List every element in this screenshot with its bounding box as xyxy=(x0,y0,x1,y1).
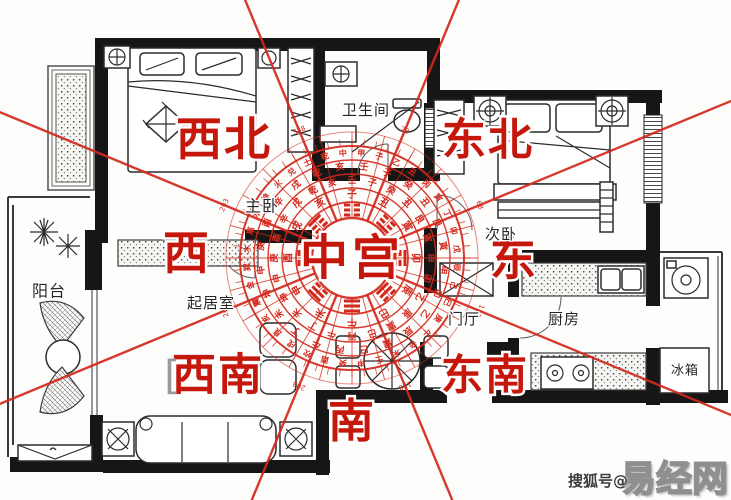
compass-tick xyxy=(293,155,297,161)
direction-label-center: 中宫 xyxy=(300,230,404,286)
kitchen-counter-top xyxy=(522,263,646,296)
ring-character: 离 xyxy=(244,226,256,236)
radiator xyxy=(600,182,613,232)
compass-tick xyxy=(249,314,255,318)
room-label-kitchen: 厨房 xyxy=(548,310,580,328)
ring-character: 卯 xyxy=(448,226,460,236)
ring-character: 庚 xyxy=(268,253,280,262)
fengshui-floorplan: 2368113158203248293338子丑寅卯辰巳午未申酉戌亥壬子癸丑艮寅… xyxy=(0,0,731,500)
ring-character: 寅 xyxy=(437,241,450,252)
ring-character: 辛 xyxy=(277,212,292,226)
ring-character: 壬 xyxy=(347,174,356,186)
room-label-fridge: 冰箱 xyxy=(671,363,699,379)
side-table-left xyxy=(102,422,134,456)
compass-tick xyxy=(282,162,286,168)
ring-character: 壬 xyxy=(359,160,370,173)
room-label-second-bedroom: 次卧 xyxy=(485,225,517,243)
bay-window xyxy=(48,66,94,190)
degree-label: 68 xyxy=(474,200,485,211)
balcony-plants xyxy=(30,218,80,258)
ring-character: 巳 xyxy=(359,343,369,355)
direction-label-southeast: 东南 xyxy=(441,351,529,400)
direction-label-northwest: 西北 xyxy=(176,112,272,166)
ring-character: 巳 xyxy=(366,326,378,339)
compass-tick xyxy=(418,162,422,168)
compass-tick xyxy=(239,221,246,223)
ring-character: 辰 xyxy=(452,263,462,272)
compass-tick xyxy=(234,270,241,271)
ring-character: 申 xyxy=(357,358,366,369)
balcony-window-sill xyxy=(18,445,92,461)
direction-label-south: 南 xyxy=(328,394,376,448)
compass-tick xyxy=(304,360,307,366)
ring-character: 卯 xyxy=(410,253,423,263)
compass-tick xyxy=(454,304,460,307)
ring-character: 戊 xyxy=(452,243,463,253)
watermark: 搜狐号@ 易经网 xyxy=(568,462,728,498)
room-label-bathroom: 卫生间 xyxy=(342,101,390,119)
ring-character: 子 xyxy=(374,151,384,162)
ring-character: 丙 xyxy=(347,330,356,341)
room-label-entry-hall: 门厅 xyxy=(448,310,480,328)
ring-character: 中 xyxy=(338,148,347,159)
room-label-balcony: 阳台 xyxy=(32,282,66,301)
ring-character: 子 xyxy=(347,189,357,201)
compass-tick xyxy=(454,210,460,213)
ring-character: 戌 xyxy=(289,178,303,193)
bracket-decoration: [ xyxy=(164,353,180,399)
watermark-account: 搜狐号@ xyxy=(568,470,628,491)
compass-tick xyxy=(315,365,317,372)
ring-character: 乾 xyxy=(320,150,330,162)
ring-character: 子 xyxy=(366,177,378,190)
floorplan-canvas: 2368113158203248293338子丑寅卯辰巳午未申酉戌亥壬子癸丑艮寅… xyxy=(0,0,731,500)
room-label-living-room: 起居室 xyxy=(187,294,235,312)
ring-character: 癸 xyxy=(337,358,348,369)
ring-character: 乾 xyxy=(306,183,320,198)
compass-tick xyxy=(398,149,401,155)
ring-character: 坤 xyxy=(277,290,292,304)
compass-tick xyxy=(364,369,365,376)
compass-tick xyxy=(459,221,466,223)
trigram-qian xyxy=(344,300,360,313)
compass-tick xyxy=(272,170,277,175)
ring-character: 申 xyxy=(254,265,267,276)
degree-label: 293 xyxy=(218,197,231,212)
ring-character: 丙 xyxy=(335,343,345,355)
ring-character: 午 xyxy=(347,316,357,329)
wicker-chair-bottom xyxy=(40,367,84,414)
direction-label-northeast: 东北 xyxy=(442,115,534,166)
ring-character: 甲 xyxy=(437,265,449,275)
room-label-master-bedroom: 主卧 xyxy=(245,197,279,216)
compass-tick xyxy=(443,188,449,192)
ring-character: 酉 xyxy=(283,253,295,263)
ceiling-lamp-right xyxy=(596,96,628,126)
compass-tick xyxy=(449,199,455,203)
ring-character: 巽 xyxy=(242,263,253,272)
compass-tick xyxy=(327,368,328,375)
nightstand-left xyxy=(104,46,130,68)
direction-label-west: 西 xyxy=(163,226,211,280)
compass-tick xyxy=(236,233,243,234)
ring-character: 甲 xyxy=(424,253,435,262)
compass-tick xyxy=(463,246,470,247)
ring-character: 酉 xyxy=(320,354,330,365)
watermark-brand: 易经网 xyxy=(620,462,728,498)
compass-tick xyxy=(462,233,469,234)
ring-character: 甲 xyxy=(357,149,366,159)
compass-tick xyxy=(408,155,412,161)
compass-tick xyxy=(364,140,365,147)
compass-tick xyxy=(243,304,249,307)
compass-tick xyxy=(239,293,246,295)
washing-machine xyxy=(664,258,708,298)
ring-character: 亥 xyxy=(335,160,346,173)
sofa xyxy=(136,416,276,463)
ring-character: 金 xyxy=(244,279,256,291)
ring-character: 巽 xyxy=(384,318,398,333)
side-table-right xyxy=(280,422,312,456)
compass-tick xyxy=(375,142,376,149)
direction-label-southwest: 西南 xyxy=(172,350,264,401)
compass-tick xyxy=(264,178,269,183)
compass-tick xyxy=(236,281,243,282)
compass-tick xyxy=(256,188,262,192)
